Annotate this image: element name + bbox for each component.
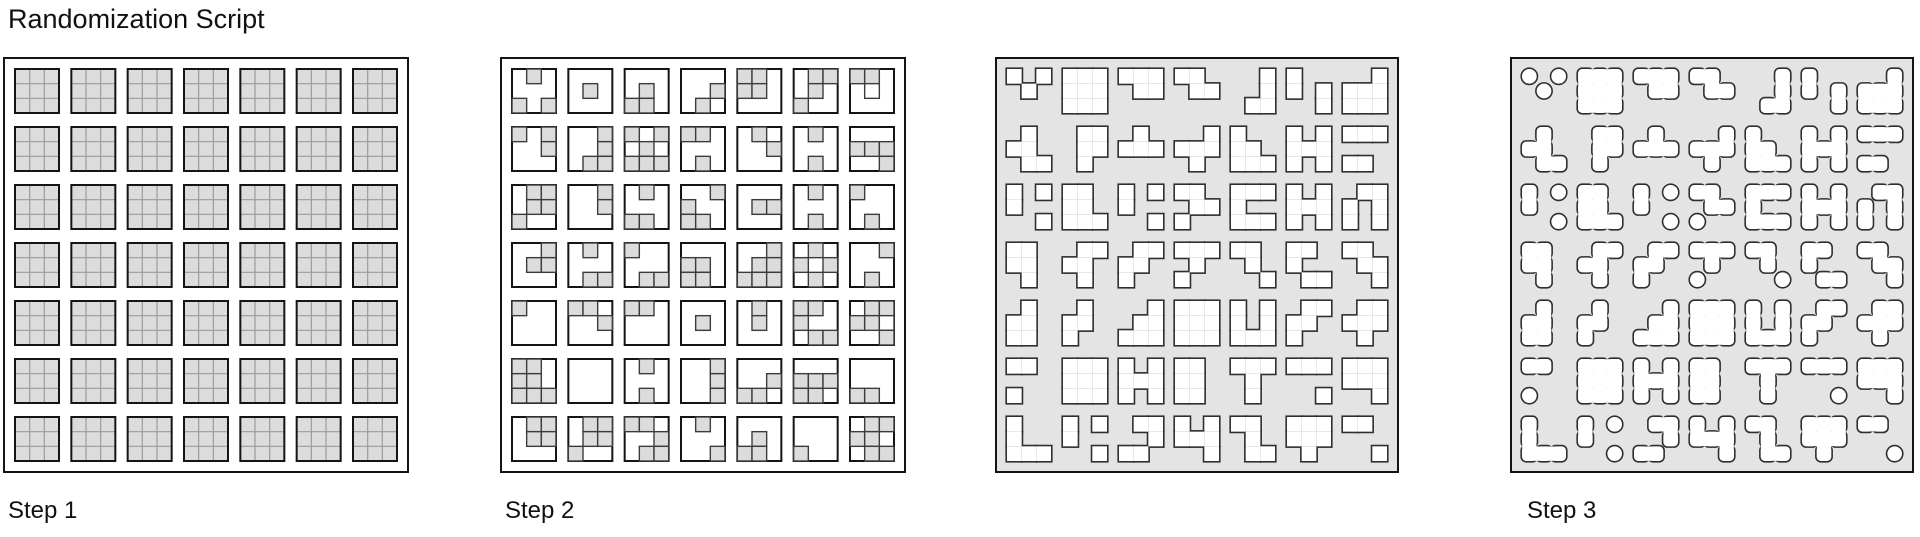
step-3-label: Step 3 [1527,497,1596,525]
step-1-full-grid-graphic [3,57,409,473]
panel-step-2-merged [995,57,1399,473]
step-2-label: Step 2 [505,497,574,525]
merged-shapes-graphic [995,57,1399,473]
panel-step-2 [500,57,906,473]
step-2-random-cells-graphic [500,57,906,473]
rounded-shapes-graphic [1510,57,1914,473]
panel-step-1 [3,57,409,473]
step-1-label: Step 1 [8,497,77,525]
panel-step-3 [1510,57,1914,473]
page-title: Randomization Script [8,4,265,35]
